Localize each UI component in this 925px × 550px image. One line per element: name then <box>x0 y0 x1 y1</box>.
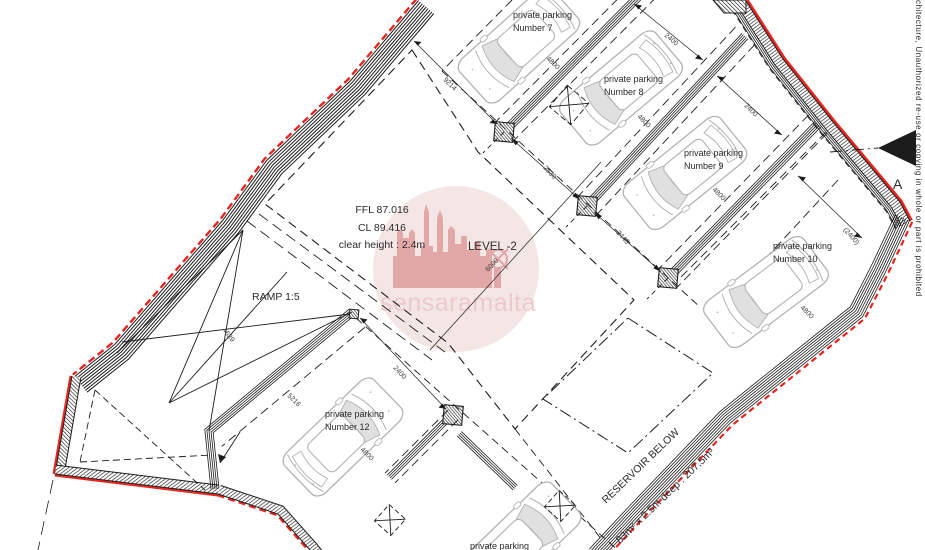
svg-text:Number 7: Number 7 <box>513 23 553 33</box>
svg-text:private parking: private parking <box>604 74 663 84</box>
svg-text:Number 12: Number 12 <box>325 422 370 432</box>
svg-text:FFL 87.016: FFL 87.016 <box>355 204 408 216</box>
svg-text:Number 10: Number 10 <box>773 254 818 264</box>
svg-text:chitecture, Unauthorized re-us: chitecture, Unauthorized re-use or copyi… <box>914 0 923 297</box>
svg-text:private parking: private parking <box>470 541 529 550</box>
svg-text:private parking: private parking <box>325 409 384 419</box>
svg-text:A: A <box>893 176 903 192</box>
svg-text:private parking: private parking <box>773 241 832 251</box>
svg-text:private parking: private parking <box>684 148 743 158</box>
svg-text:Number 8: Number 8 <box>604 87 644 97</box>
svg-text:Number 9: Number 9 <box>684 161 724 171</box>
svg-text:sensaramalta: sensaramalta <box>380 289 536 317</box>
svg-text:private parking: private parking <box>513 10 572 20</box>
svg-text:CL 89.416: CL 89.416 <box>358 222 406 234</box>
svg-text:clear height : 2.4m: clear height : 2.4m <box>339 239 426 251</box>
svg-text:RAMP 1:5: RAMP 1:5 <box>252 291 300 303</box>
svg-text:LEVEL -2: LEVEL -2 <box>468 241 517 253</box>
